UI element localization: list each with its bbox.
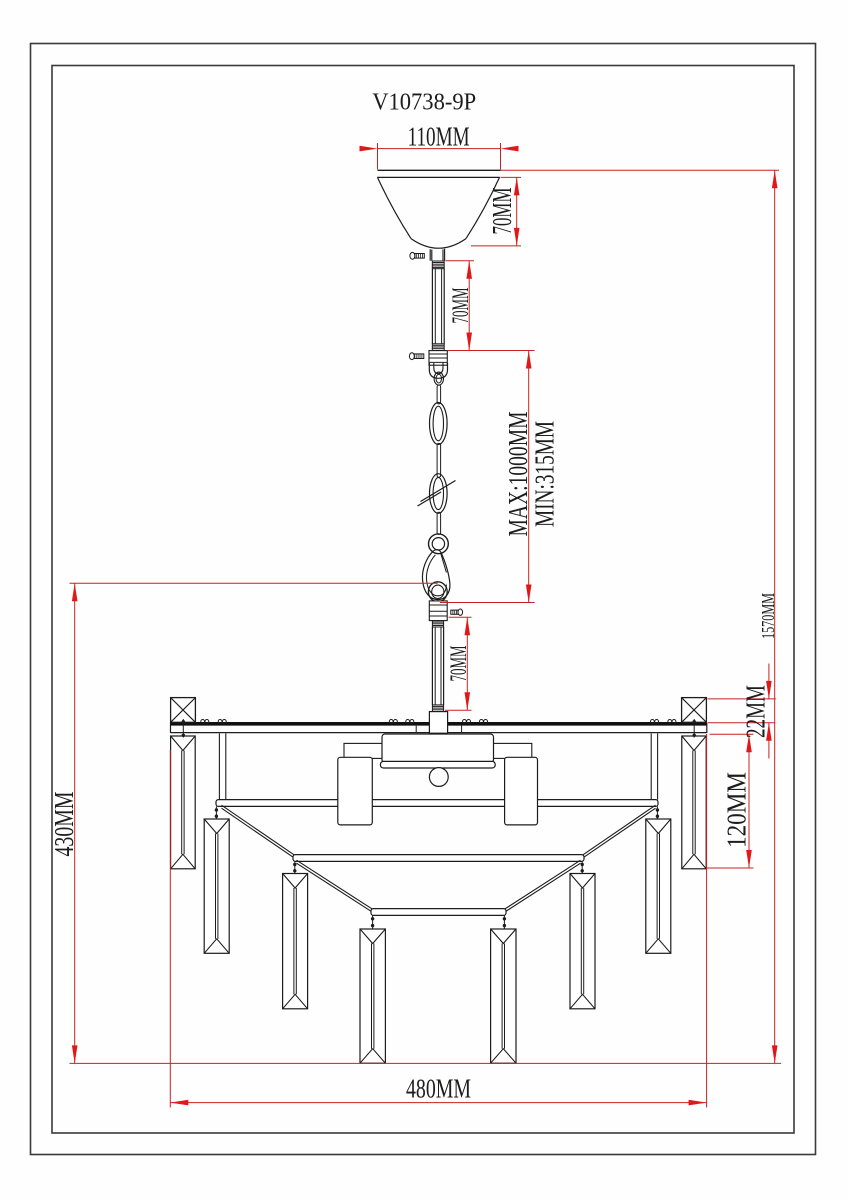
svg-text:430MM: 430MM — [49, 792, 79, 857]
svg-text:110MM: 110MM — [408, 122, 470, 152]
svg-text:70MM: 70MM — [448, 288, 473, 324]
svg-text:480MM: 480MM — [406, 1074, 471, 1104]
svg-text:120MM: 120MM — [722, 772, 752, 848]
svg-text:1570MM: 1570MM — [758, 593, 778, 639]
svg-text:70MM: 70MM — [487, 188, 517, 235]
svg-text:MAX:1000MM: MAX:1000MM — [503, 412, 533, 537]
svg-text:V10738-9P: V10738-9P — [372, 89, 476, 116]
svg-text:22MM: 22MM — [741, 685, 771, 738]
svg-text:MIN:315MM: MIN:315MM — [530, 421, 560, 527]
svg-text:70MM: 70MM — [446, 646, 471, 682]
